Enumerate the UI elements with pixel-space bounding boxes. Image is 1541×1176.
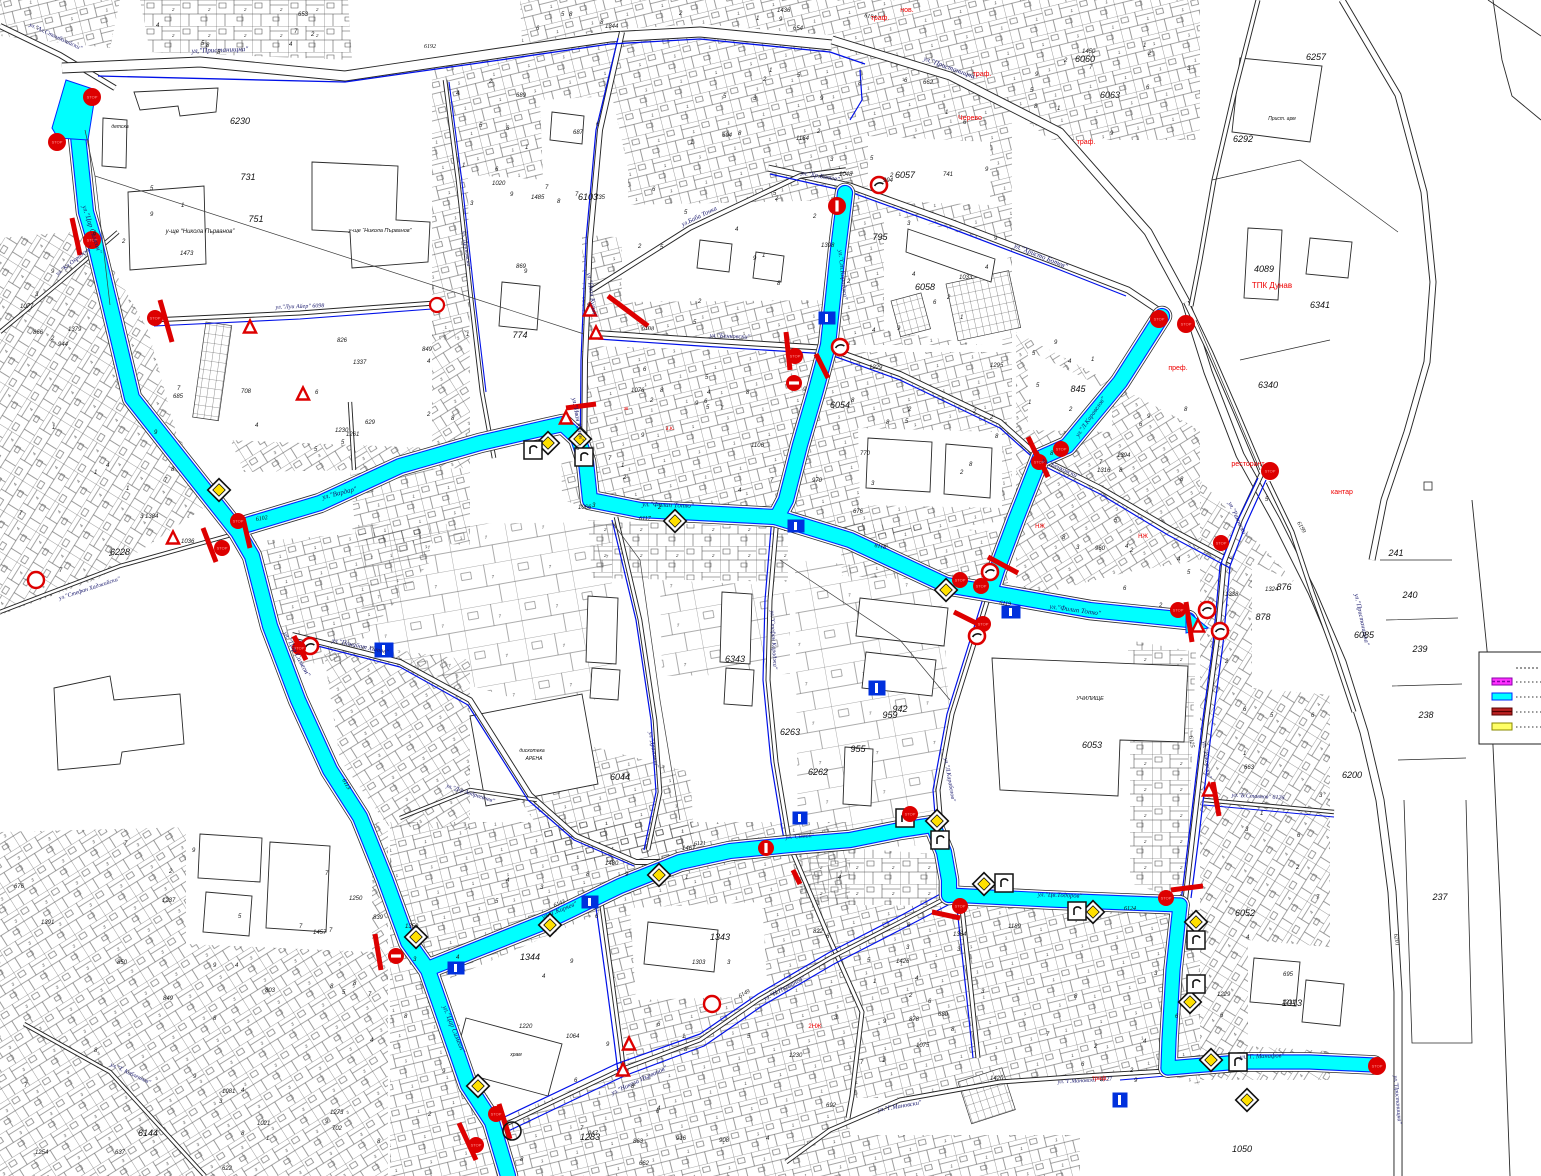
svg-text:STOP: STOP [1372,1064,1383,1069]
svg-text:1344: 1344 [605,24,619,30]
svg-text:1033: 1033 [959,275,973,281]
svg-text:1076: 1076 [631,388,645,394]
svg-text:6192: 6192 [424,44,436,50]
svg-text:2: 2 [1147,51,1152,57]
svg-text:6085: 6085 [1354,630,1375,640]
svg-text:1303: 1303 [692,960,706,966]
svg-text:1: 1 [466,332,469,338]
svg-text:6057: 6057 [895,170,916,180]
svg-text:1020: 1020 [492,181,506,187]
svg-text:1364: 1364 [953,932,967,938]
svg-text:6230: 6230 [230,116,250,126]
svg-text:STOP: STOP [976,584,987,589]
svg-text:947: 947 [588,1131,599,1137]
svg-text:1036: 1036 [181,539,195,545]
svg-text:1075: 1075 [916,1043,930,1049]
svg-text:237: 237 [1431,892,1448,902]
svg-text:1229: 1229 [869,365,883,371]
svg-text:STOP: STOP [52,140,63,145]
svg-text:1426: 1426 [896,959,910,965]
svg-text:1: 1 [1143,43,1146,49]
svg-text:1384: 1384 [145,514,159,520]
svg-text:2: 2 [1068,407,1073,413]
svg-text:2: 2 [907,407,912,413]
svg-text:741: 741 [943,172,953,178]
svg-text:2: 2 [168,869,173,875]
svg-text:1189: 1189 [1008,924,1022,930]
svg-text:детска: детска [111,124,128,130]
svg-text:676: 676 [14,884,25,890]
svg-text:1273: 1273 [330,1110,344,1116]
svg-text:839: 839 [373,915,384,921]
svg-text:2: 2 [1129,548,1134,554]
svg-text:845: 845 [1070,384,1086,394]
svg-text:866: 866 [33,330,44,336]
svg-text:1229: 1229 [1217,992,1231,998]
svg-text:1391: 1391 [41,920,54,926]
svg-text:2: 2 [678,11,683,17]
svg-text:708: 708 [241,389,252,395]
svg-text:6292: 6292 [1233,134,1253,144]
svg-text:1379: 1379 [68,327,82,333]
svg-text:1: 1 [882,1058,885,1064]
svg-text:STOP: STOP [978,622,989,627]
svg-text:676: 676 [853,509,864,515]
svg-text:6060: 6060 [1075,54,1095,64]
svg-text:траф.: траф. [871,15,890,22]
svg-text:у-ще “Никола Първанов”: у-ще “Никола Първанов” [348,228,413,234]
svg-text:1: 1 [1091,357,1094,363]
svg-text:2: 2 [50,336,55,342]
svg-text:1467: 1467 [682,846,696,852]
svg-text:ул."Бенковски": ул."Бенковски" [709,332,751,340]
svg-text:849: 849 [163,996,174,1002]
svg-text:1220: 1220 [519,1024,533,1030]
svg-text:2: 2 [649,398,654,404]
svg-text:храм: храм [509,1052,522,1058]
svg-text:239: 239 [1411,644,1427,654]
svg-text:662: 662 [923,80,934,86]
svg-text:685: 685 [173,394,184,400]
svg-text:STOP: STOP [491,1112,502,1117]
svg-text:2: 2 [637,244,642,250]
svg-text:1337: 1337 [353,360,367,366]
svg-text:1164: 1164 [796,136,810,142]
svg-text:2: 2 [816,129,821,135]
svg-text:2: 2 [1224,659,1229,665]
svg-text:STOP: STOP [471,1143,482,1148]
svg-text:1420: 1420 [990,1076,1004,1082]
svg-text:2: 2 [1093,1044,1098,1050]
svg-text:STOP: STOP [1181,322,1192,327]
svg-text:1: 1 [462,163,465,169]
svg-text:1261: 1261 [346,432,359,438]
svg-text:1316: 1316 [1097,468,1111,474]
svg-text:689: 689 [516,93,527,99]
svg-text:1: 1 [126,486,129,492]
svg-text:4089: 4089 [1254,264,1274,274]
svg-text:STOP: STOP [87,95,98,100]
svg-text:6262: 6262 [808,767,828,777]
svg-text:АРЕНА: АРЕНА [525,756,544,762]
svg-text:1394: 1394 [1117,453,1131,459]
svg-text:994: 994 [883,178,894,184]
svg-text:нов.: нов. [900,7,913,14]
svg-text:1: 1 [525,145,528,151]
svg-text:908: 908 [719,1138,730,1144]
svg-text:622: 622 [222,1166,233,1172]
svg-text:916: 916 [676,1136,687,1142]
svg-text:6054: 6054 [830,400,850,410]
svg-text:1237: 1237 [162,898,176,904]
svg-text:959: 959 [882,710,897,720]
svg-text:654: 654 [793,26,804,32]
svg-text:6200: 6200 [1342,770,1362,780]
svg-text:1: 1 [873,979,876,985]
svg-text:662: 662 [639,1161,650,1167]
svg-text:1338: 1338 [1225,592,1239,598]
svg-text:694: 694 [722,133,733,139]
svg-text:1081: 1081 [222,1089,235,1095]
svg-text:1: 1 [1028,400,1031,406]
svg-text:траф.: траф. [1077,139,1096,146]
svg-text:774: 774 [512,330,527,340]
svg-text:240: 240 [1401,590,1417,600]
svg-text:2: 2 [812,214,817,220]
svg-text:1064: 1064 [566,1034,580,1040]
svg-text:1: 1 [1057,106,1060,112]
svg-text:2: 2 [946,295,951,301]
svg-text:2: 2 [1158,603,1163,609]
svg-text:2: 2 [774,196,779,202]
svg-text:STOP: STOP [1216,541,1227,546]
svg-text:878: 878 [909,1017,920,1023]
svg-text:692: 692 [826,1103,837,1109]
svg-text:2: 2 [426,412,431,418]
svg-text:з.к.: з.к. [666,426,675,432]
svg-text:1050: 1050 [1232,1144,1252,1154]
svg-text:653: 653 [298,12,309,18]
svg-text:6343: 6343 [725,654,745,664]
svg-text:6053: 6053 [1082,740,1102,750]
svg-text:1: 1 [960,315,963,321]
svg-text:663: 663 [1244,765,1255,771]
svg-text:731: 731 [240,172,255,182]
svg-text:687: 687 [573,130,584,136]
svg-text:6340: 6340 [1258,380,1278,390]
svg-text:1: 1 [1243,751,1246,757]
svg-text:6063: 6063 [1100,90,1120,100]
svg-text:STOP: STOP [233,519,244,524]
svg-text:6228: 6228 [110,547,130,557]
svg-text:955: 955 [850,744,866,754]
svg-text:STOP: STOP [1154,317,1165,322]
svg-text:795: 795 [872,232,888,242]
svg-text:241: 241 [1387,548,1403,558]
svg-text:2: 2 [762,77,767,83]
svg-text:1436: 1436 [777,8,791,14]
svg-text:6108: 6108 [642,326,654,332]
svg-text:1: 1 [690,140,693,146]
svg-text:дискотека: дискотека [519,748,544,754]
svg-text:STOP: STOP [1265,469,1276,474]
svg-text:НЖ: НЖ [1035,524,1045,530]
svg-text:1254: 1254 [35,1150,49,1156]
svg-text:2: 2 [1063,58,1068,64]
svg-text:1457: 1457 [313,930,327,936]
svg-text:6121: 6121 [694,841,706,848]
svg-text:1211: 1211 [1282,1000,1295,1006]
svg-text:2: 2 [697,299,702,305]
svg-text:НЖ: НЖ [1138,534,1148,540]
svg-text:6044: 6044 [610,772,630,782]
svg-text:STOP: STOP [1173,608,1184,613]
svg-text:1295: 1295 [990,363,1004,369]
svg-text:2: 2 [622,475,627,481]
svg-text:6058: 6058 [915,282,935,292]
svg-text:238: 238 [1417,710,1433,720]
svg-text:1: 1 [266,1136,269,1142]
svg-text:1: 1 [769,68,772,74]
svg-text:876: 876 [1276,582,1291,592]
svg-text:1230: 1230 [789,1053,803,1059]
svg-text:849: 849 [422,347,433,353]
svg-text:826: 826 [337,338,348,344]
svg-text:ТПК Дунав: ТПК Дунав [1252,281,1292,290]
svg-text:2: 2 [908,993,913,999]
svg-text:6124: 6124 [1124,905,1136,912]
svg-text:629: 629 [365,420,376,426]
svg-text:1: 1 [756,16,759,22]
svg-text:2: 2 [1295,865,1300,871]
svg-text:2: 2 [972,409,977,415]
svg-text:1: 1 [621,463,624,469]
svg-text:695: 695 [1283,972,1294,978]
svg-text:1048: 1048 [839,172,853,178]
svg-text:822: 822 [813,929,824,935]
svg-text:2: 2 [1129,1068,1134,1074]
svg-text:6052: 6052 [1235,908,1255,918]
svg-text:STOP: STOP [790,354,801,359]
svg-text:1480: 1480 [605,861,619,867]
svg-text:970: 970 [812,478,823,484]
svg-text:STOP: STOP [955,904,966,909]
svg-text:1250: 1250 [349,896,363,902]
svg-text:960: 960 [1095,546,1106,552]
svg-text:2: 2 [488,79,493,85]
svg-text:кантар: кантар [1331,489,1353,496]
svg-text:751: 751 [248,214,263,224]
svg-text:850: 850 [117,960,128,966]
svg-text:1: 1 [945,110,948,116]
svg-text:6144: 6144 [138,1128,158,1138]
svg-text:803: 803 [265,988,276,994]
svg-text:STOP: STOP [955,578,966,583]
svg-text:6263: 6263 [780,727,800,737]
svg-text:STOP: STOP [905,812,916,817]
svg-text:1077: 1077 [20,304,34,310]
svg-text:2: 2 [121,239,126,245]
svg-text:преф.: преф. [1168,365,1187,372]
svg-text:878: 878 [1255,612,1270,622]
svg-text:1324: 1324 [1265,587,1279,593]
svg-text:траф.: траф. [973,71,992,78]
svg-text:863: 863 [633,1139,644,1145]
svg-text:735: 735 [595,195,606,201]
svg-text:1: 1 [685,875,688,881]
svg-text:ресторант: ресторант [1231,461,1265,468]
svg-text:2: 2 [657,505,662,511]
svg-text:1021: 1021 [257,1121,270,1127]
svg-text:1398: 1398 [821,243,835,249]
svg-text:1343: 1343 [710,932,730,942]
svg-text:1: 1 [762,253,765,259]
svg-text:STOP: STOP [1056,447,1067,452]
svg-text:Прист. арм: Прист. арм [1268,116,1296,122]
svg-text:2: 2 [108,552,113,558]
svg-text:770: 770 [860,451,871,457]
svg-text:6117: 6117 [639,516,652,522]
svg-text:702: 702 [332,1126,343,1132]
svg-text:2: 2 [310,32,315,38]
svg-text:1: 1 [52,425,55,431]
svg-text:STOP: STOP [150,316,161,321]
svg-text:STOP: STOP [1161,896,1172,901]
svg-text:1485: 1485 [531,195,545,201]
svg-text:1: 1 [1260,811,1263,817]
svg-text:у-ще “Никола Първанов”: у-ще “Никола Първанов” [165,229,236,235]
svg-text:1359: 1359 [405,924,419,930]
svg-text:УЧИЛИЩЕ: УЧИЛИЩЕ [1075,696,1104,702]
svg-text:1450: 1450 [1082,49,1096,55]
svg-text:637: 637 [115,1150,126,1156]
svg-text:1106: 1106 [751,443,765,449]
svg-text:1: 1 [682,1034,685,1040]
svg-text:944: 944 [58,342,69,348]
svg-text:2: 2 [846,279,851,285]
svg-text:2: 2 [1099,1077,1104,1083]
svg-text:6257: 6257 [1306,52,1327,62]
svg-text:680: 680 [938,1012,949,1018]
svg-text:2: 2 [959,470,964,476]
svg-text:2НЖ: 2НЖ [808,1024,822,1030]
svg-text:1066: 1066 [578,505,592,511]
svg-text:2: 2 [427,1112,432,1118]
svg-text:2: 2 [989,415,994,421]
svg-text:1473: 1473 [180,251,194,257]
svg-text:Черево: Черево [958,115,982,122]
svg-text:1344: 1344 [520,952,540,962]
svg-text:STOP: STOP [217,546,228,551]
svg-text:6341: 6341 [1310,300,1330,310]
svg-text:1: 1 [94,470,97,476]
